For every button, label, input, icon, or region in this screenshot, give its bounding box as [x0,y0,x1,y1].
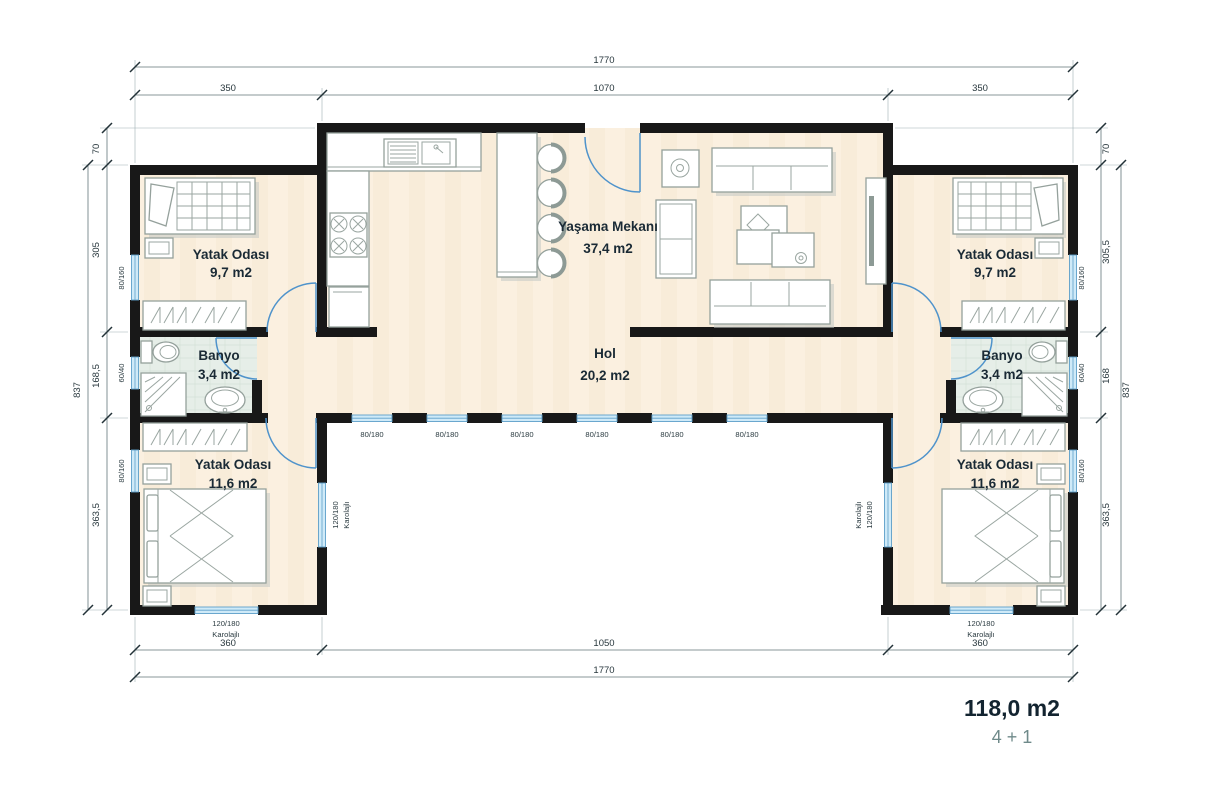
tv-unit-icon [866,178,886,284]
label-bath-r-name: Banyo [981,348,1022,363]
wall-hall-bottom-7 [767,413,893,423]
bed-single-top-right-icon [953,178,1066,238]
dim-top-seg-1: 350 [220,83,236,94]
wall-living-bottom-stub [316,327,377,337]
dim-bottom-seg-2: 1050 [593,638,614,649]
wall-hall-bottom-2 [392,413,427,423]
wall-inner-left-lower-1 [317,413,327,483]
dim-right-seg-2: 168 [1101,368,1112,384]
toilet-right-icon [1029,341,1067,363]
kitchen-sink-icon [384,139,456,167]
bed-single-top-left-icon [145,178,259,238]
window-label-hall-5: 80/180 [660,430,683,439]
wall-left-wing-top [130,165,327,175]
window-label-right-2: 60/40 [1077,363,1086,382]
window-label-inner-left-type: Karolajlı [342,501,351,528]
wall-outer-right-1 [1068,165,1078,255]
nightstand-bottom-left-lower-icon [143,586,171,606]
window-mullions-inner [322,483,888,547]
wardrobe-top-left-icon [143,301,246,330]
label-bedroom-tr-name: Yatak Odası [957,247,1034,262]
stove-icon [330,213,367,257]
wall-bottom-left-2 [258,605,327,615]
label-bath-l-area: 3,4 m2 [198,367,240,382]
label-bedroom-bl-name: Yatak Odası [195,457,272,472]
nightstand-top-right-icon [1035,238,1063,258]
wardrobe-bottom-right-icon [961,423,1065,451]
label-bedroom-bl-area: 11,6 m2 [209,476,258,491]
wall-top-center-left [317,123,585,133]
bed-double-bottom-left-icon [144,489,270,587]
wall-outer-right-4 [1068,492,1078,615]
dim-left-seg-2: 168,5 [91,364,102,388]
sink-right-icon [963,387,1003,413]
summary-block: 118,0 m2 4 + 1 [964,695,1060,747]
dim-right-offset: 70 [1101,144,1112,155]
window-label-hall-1: 80/180 [360,430,383,439]
dim-bottom-seg-3: 360 [972,638,988,649]
sink-left-icon [205,387,245,413]
dim-left-seg-1: 305 [91,242,102,258]
window-label-inner-right-size: 120/180 [865,501,874,528]
wall-inner-left-lower-2 [317,547,327,615]
label-hall-name: Hol [594,346,616,361]
window-label-inner-left-size: 120/180 [331,501,340,528]
label-living-area: 37,4 m2 [583,241,633,256]
bed-double-bottom-right-icon [942,489,1068,587]
nightstand-bottom-right-upper-icon [1037,464,1065,484]
label-bedroom-tr-area: 9,7 m2 [974,265,1016,280]
dim-top-total: 1770 [593,55,614,66]
dim-left-seg-3: 363,5 [91,503,102,527]
wall-inner-right-lower-2 [883,547,893,615]
wall-hall-bottom-5 [617,413,652,423]
wall-outer-left-4 [130,492,140,615]
bar-island-icon [497,133,541,281]
label-living-name: Yaşama Mekanı [558,219,658,234]
dim-top-seg-3: 350 [972,83,988,94]
wall-bath-left-partition [252,380,262,413]
pillow-icon [147,495,158,531]
wall-hall-bottom-3 [467,413,502,423]
wall-living-bottom [630,327,893,337]
wall-right-wing-top [883,165,1078,175]
wall-outer-left-1 [130,165,140,255]
fridge-icon [329,287,369,327]
dim-right-seg-3: 363,5 [1101,503,1112,527]
dim-top-seg-2: 1070 [593,83,614,94]
dim-bottom-seg-1: 360 [220,638,236,649]
room-count-label: 4 + 1 [992,727,1033,747]
dim-right-total: 837 [1121,382,1132,398]
dim-left-offset: 70 [91,144,102,155]
sofa-top-icon [712,148,836,196]
wall-center-left-vertical [317,123,327,337]
wall-hall-bottom-6 [692,413,727,423]
label-bedroom-tl-name: Yatak Odası [193,247,270,262]
label-hall-area: 20,2 m2 [580,368,630,383]
wardrobe-bottom-left-icon [143,423,247,451]
window-label-right-1: 80/160 [1077,266,1086,289]
pillow-icon [1050,495,1061,531]
window-label-left-1: 80/160 [117,266,126,289]
floor-plan-drawing: Yatak Odası 9,7 m2 Yatak Odası 9,7 m2 Ba… [0,0,1205,800]
window-label-inner-right-type: Karolajlı [854,501,863,528]
wall-top-center-right [640,123,893,133]
window-label-bottom-right-size: 120/180 [967,619,994,628]
dim-left-total: 837 [72,382,83,398]
sofa-bottom-icon [710,280,834,328]
toilet-left-icon [141,341,179,363]
wall-bath-right-partition [946,380,956,413]
shower-left-icon [141,373,186,416]
cabinet-icon [656,200,696,278]
label-bath-l-name: Banyo [198,348,239,363]
wall-hall-bottom-4 [542,413,577,423]
lamp-table-icon [662,150,699,187]
wardrobe-top-right-icon [962,301,1065,330]
nightstand-bottom-right-lower-icon [1037,586,1065,606]
label-bedroom-tl-area: 9,7 m2 [210,265,252,280]
total-area-label: 118,0 m2 [964,695,1060,721]
label-bedroom-br-area: 11,6 m2 [971,476,1020,491]
pillow-icon [1050,541,1061,577]
window-label-left-3: 80/160 [117,459,126,482]
pillow-icon [147,541,158,577]
window-label-right-3: 80/160 [1077,459,1086,482]
window-label-left-2: 60/40 [117,363,126,382]
dim-bottom-total: 1770 [593,665,614,676]
nightstand-bottom-left-upper-icon [143,464,171,484]
window-label-bottom-left-size: 120/180 [212,619,239,628]
nightstand-top-left-icon [145,238,173,258]
shower-right-icon [1022,373,1067,416]
label-bath-r-area: 3,4 m2 [981,367,1023,382]
floor-plan-page: Yatak Odası 9,7 m2 Yatak Odası 9,7 m2 Ba… [0,0,1205,800]
dim-right-seg-1: 305,5 [1101,240,1112,264]
window-label-hall-2: 80/180 [435,430,458,439]
window-label-hall-3: 80/180 [510,430,533,439]
label-bedroom-br-name: Yatak Odası [957,457,1034,472]
window-label-hall-4: 80/180 [585,430,608,439]
window-label-hall-6: 80/180 [735,430,758,439]
